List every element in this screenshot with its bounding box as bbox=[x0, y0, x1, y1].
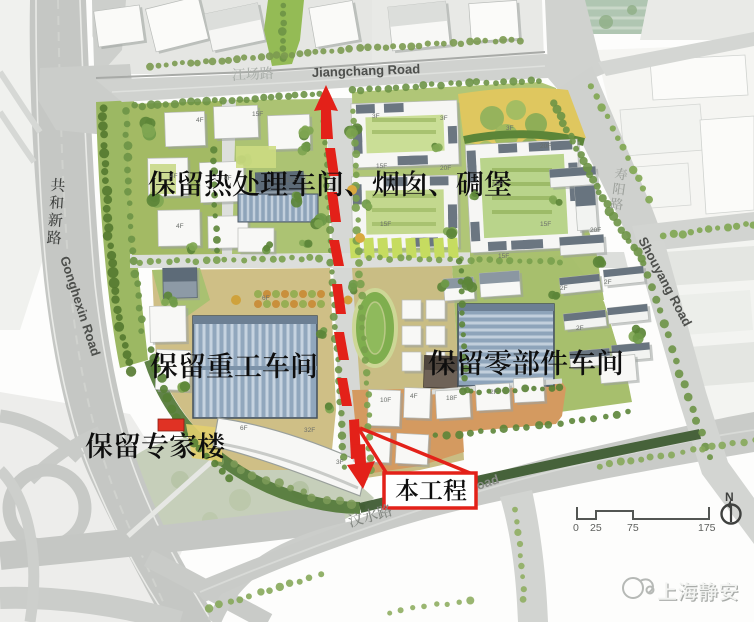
svg-text:2F: 2F bbox=[490, 389, 498, 396]
svg-text:25: 25 bbox=[590, 522, 602, 534]
svg-text:15F: 15F bbox=[540, 221, 551, 228]
svg-text:20F: 20F bbox=[590, 227, 601, 234]
svg-text:2F: 2F bbox=[576, 325, 584, 332]
svg-text:4F: 4F bbox=[170, 173, 178, 180]
svg-text:3F: 3F bbox=[336, 459, 344, 466]
svg-text:N: N bbox=[725, 490, 734, 504]
svg-text:4F: 4F bbox=[410, 393, 418, 400]
svg-text:10F: 10F bbox=[380, 397, 391, 404]
svg-text:18F: 18F bbox=[446, 395, 457, 402]
svg-text:4F: 4F bbox=[176, 223, 184, 230]
svg-text:6F: 6F bbox=[262, 295, 270, 302]
svg-text:3F: 3F bbox=[440, 115, 448, 122]
svg-text:15F: 15F bbox=[376, 163, 387, 170]
svg-text:4F: 4F bbox=[196, 117, 204, 124]
svg-text:4F: 4F bbox=[224, 175, 232, 182]
svg-text:3F: 3F bbox=[372, 113, 380, 120]
svg-text:2F: 2F bbox=[604, 279, 612, 286]
svg-text:20F: 20F bbox=[540, 143, 551, 150]
svg-text:0: 0 bbox=[573, 522, 579, 534]
svg-text:15F: 15F bbox=[286, 177, 297, 184]
svg-text:6F: 6F bbox=[240, 425, 248, 432]
svg-text:175: 175 bbox=[698, 522, 716, 534]
svg-text:15F: 15F bbox=[498, 253, 509, 260]
svg-text:15F: 15F bbox=[380, 221, 391, 228]
svg-text:15F: 15F bbox=[252, 111, 263, 118]
svg-text:3F: 3F bbox=[506, 125, 514, 132]
svg-text:2F: 2F bbox=[560, 285, 568, 292]
svg-text:32F: 32F bbox=[304, 427, 315, 434]
svg-text:75: 75 bbox=[627, 522, 639, 534]
svg-text:20F: 20F bbox=[440, 165, 451, 172]
svg-text:15F: 15F bbox=[492, 181, 503, 188]
